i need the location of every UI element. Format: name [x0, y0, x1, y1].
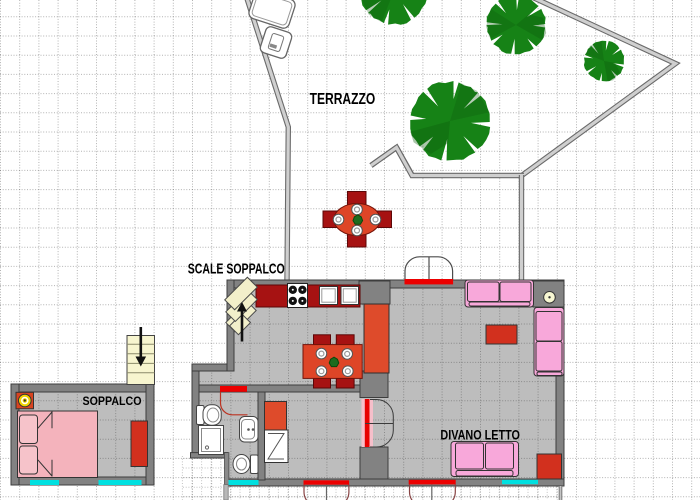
svg-text:SOPPALCO: SOPPALCO [83, 394, 142, 408]
svg-text:DIVANO LETTO: DIVANO LETTO [440, 426, 520, 442]
svg-text:TERRAZZO: TERRAZZO [310, 91, 376, 108]
svg-text:SCALE SOPPALCO: SCALE SOPPALCO [188, 260, 285, 277]
